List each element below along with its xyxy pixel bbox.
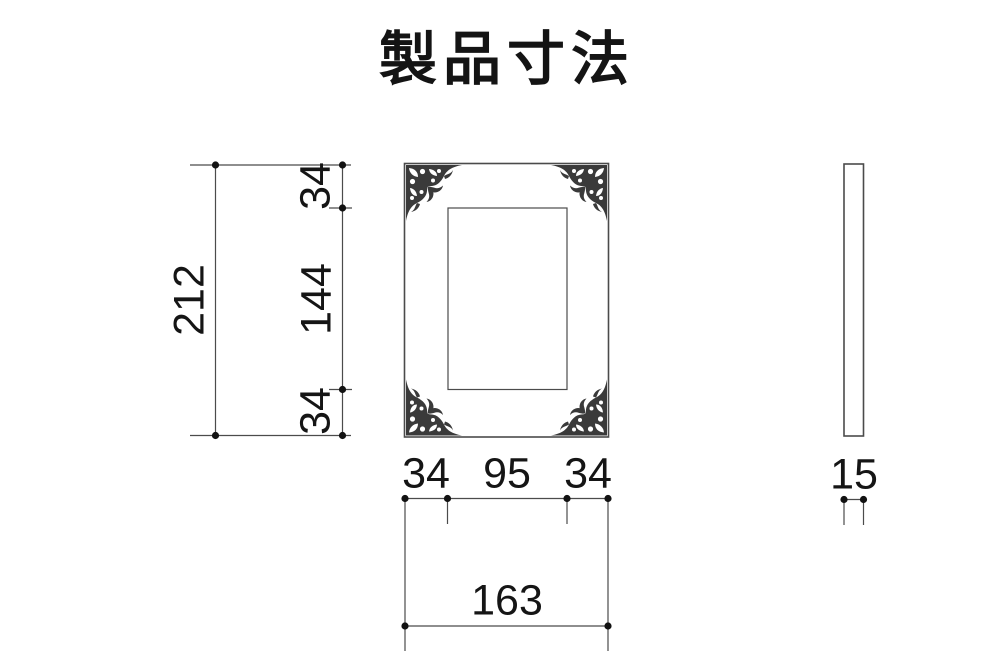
technical-drawing	[0, 0, 1000, 666]
ornament-bottom-right-icon	[551, 380, 607, 436]
frame-opening-outline	[448, 208, 567, 390]
dimension-label-thickness: 15	[830, 454, 878, 497]
width-dimension-lines	[405, 499, 608, 652]
dimension-label-opening-height: 144	[296, 263, 339, 335]
side-view	[844, 164, 864, 436]
ornament-top-right-icon	[551, 165, 607, 221]
dimension-label-frame-bottom-border: 34	[295, 387, 338, 435]
side-profile-outline	[844, 164, 864, 436]
dimension-label-overall-width: 163	[471, 580, 543, 623]
ornament-bottom-left-icon	[406, 380, 462, 436]
thickness-dimension-lines	[844, 500, 864, 526]
ornament-top-left-icon	[406, 165, 462, 221]
frame-outer-outline	[405, 164, 609, 438]
dimension-label-overall-height: 212	[169, 264, 212, 336]
dimension-label-frame-right-border: 34	[564, 453, 612, 496]
dimension-label-opening-width: 95	[483, 453, 531, 496]
dimension-drawing-page: 製品寸法	[0, 0, 1000, 666]
dimension-label-frame-left-border: 34	[402, 453, 450, 496]
dimension-label-frame-top-border: 34	[295, 162, 338, 210]
front-view	[405, 164, 609, 438]
